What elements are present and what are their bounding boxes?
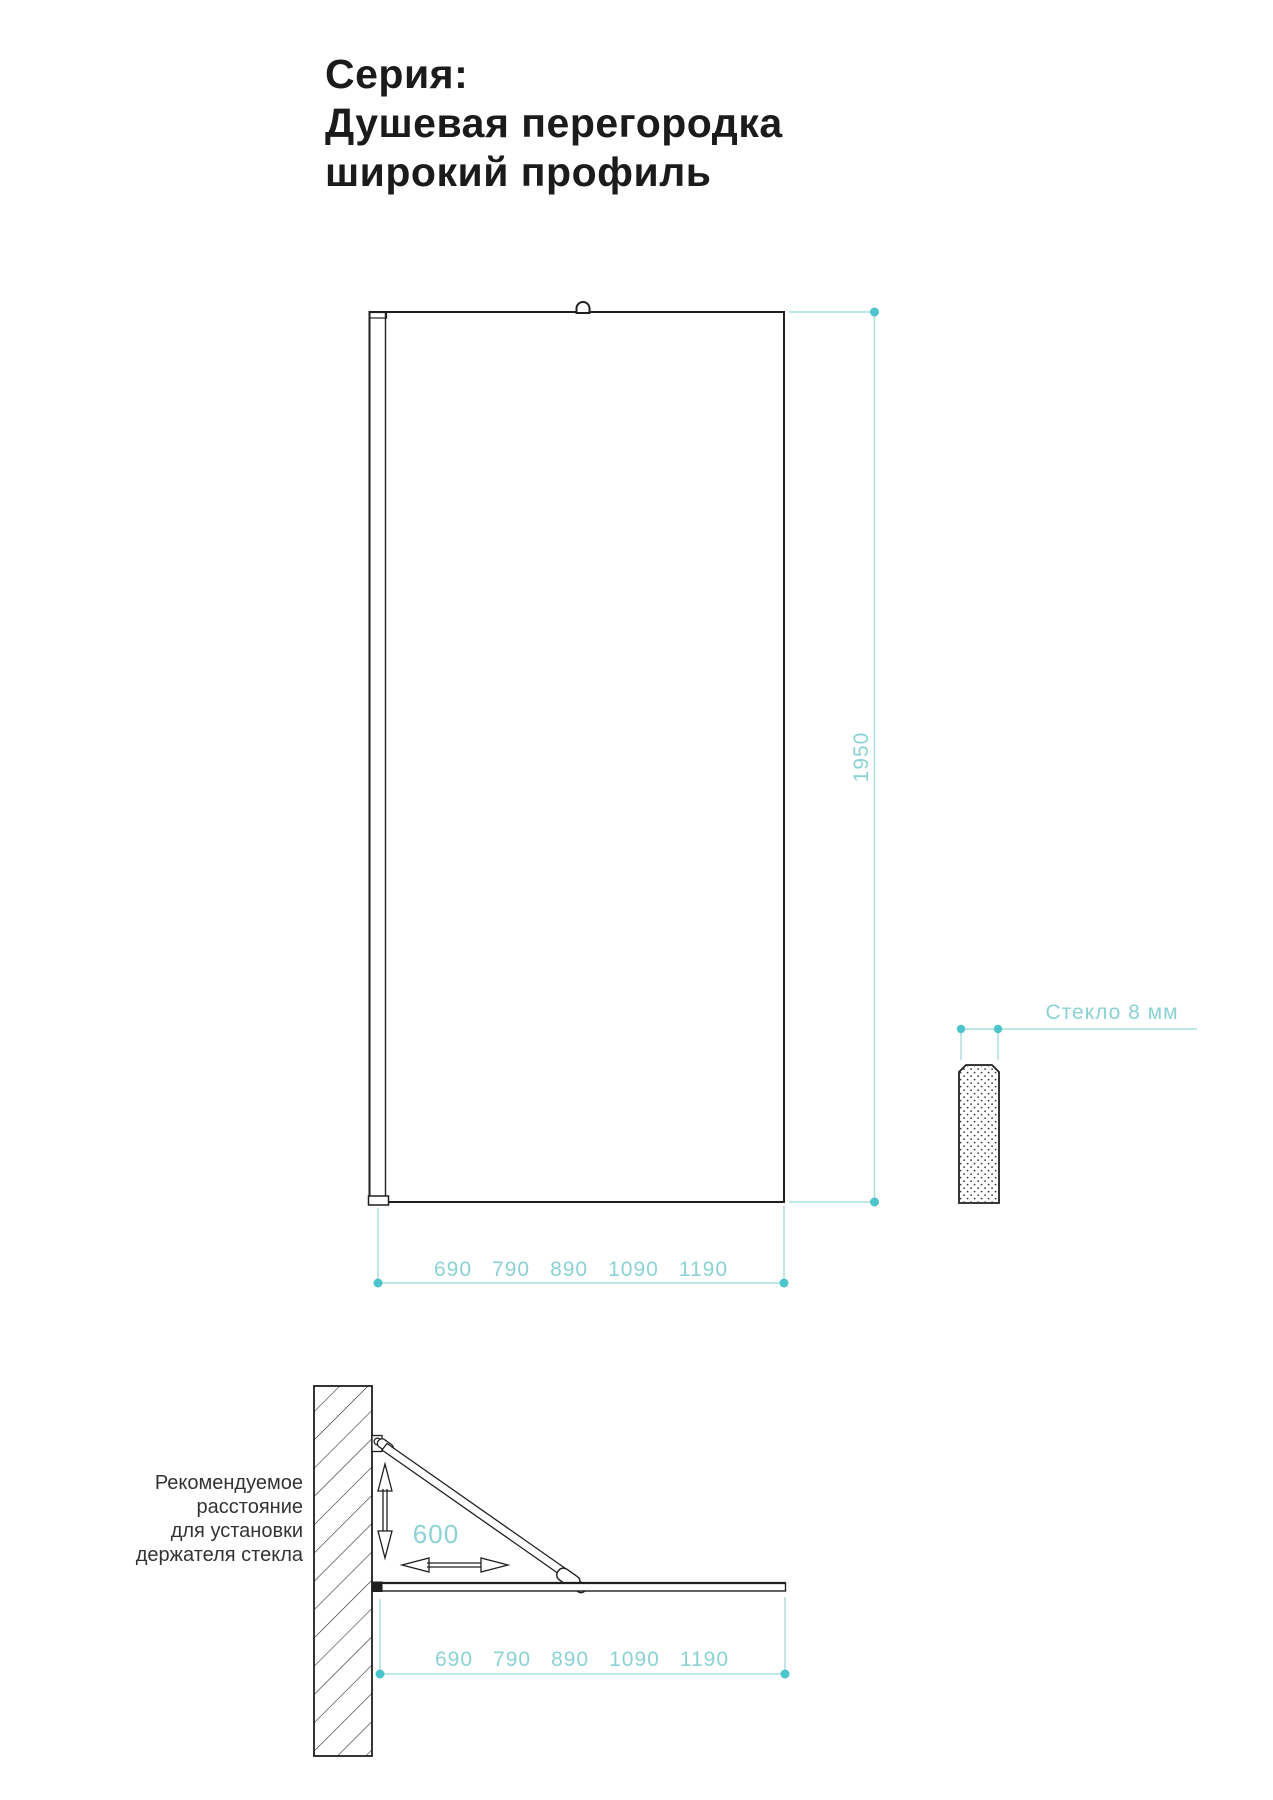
width-option: 1190 <box>679 1258 728 1281</box>
dim-endpoint-dot <box>781 1670 790 1679</box>
width-option: 1090 <box>609 1648 660 1671</box>
dim-endpoint-dot <box>374 1279 383 1288</box>
glass-section-stipple <box>959 1065 999 1203</box>
profile-bottom-foot <box>369 1196 389 1205</box>
width-option: 790 <box>493 1648 531 1671</box>
arrowhead-right <box>481 1558 508 1572</box>
wall-hatched <box>314 1386 372 1756</box>
vertical-adjust-arrow <box>378 1464 392 1558</box>
width-option: 790 <box>492 1258 530 1281</box>
width-option: 690 <box>435 1648 473 1671</box>
support-bar <box>382 1444 574 1582</box>
glass-plan <box>372 1583 786 1591</box>
front-width-dimension: 69079089010901190 <box>374 1206 789 1288</box>
glass-end-profile <box>372 1582 383 1593</box>
glass-thickness-detail: Стекло 8 мм <box>957 1001 1197 1203</box>
dim-endpoint-dot <box>994 1025 1002 1033</box>
height-dimension-label: 1950 <box>850 732 873 783</box>
arrowhead-up <box>378 1464 392 1491</box>
width-option: 1090 <box>608 1258 659 1281</box>
side-width-dimension: 69079089010901190 <box>376 1597 790 1679</box>
height-dimension: 1950 <box>789 308 879 1207</box>
width-option: 1190 <box>680 1648 729 1671</box>
technical-drawing: 1950 69079089010901190 Стекло 8 мм <box>0 0 1273 1800</box>
front-width-labels: 69079089010901190 <box>434 1258 728 1281</box>
dim-endpoint-dot <box>870 308 879 317</box>
glass-thickness-label: Стекло 8 мм <box>1045 1001 1178 1024</box>
glass-panel-outline <box>370 312 785 1202</box>
horizontal-adjust-arrow <box>402 1558 508 1572</box>
side-width-labels: 69079089010901190 <box>435 1648 729 1671</box>
width-option: 890 <box>551 1648 589 1671</box>
width-option: 890 <box>550 1258 588 1281</box>
dim-endpoint-dot <box>780 1279 789 1288</box>
front-view: 1950 69079089010901190 <box>369 302 880 1288</box>
holder-distance-label: 600 <box>413 1519 459 1549</box>
dim-endpoint-dot <box>376 1670 385 1679</box>
dim-endpoint-dot <box>957 1025 965 1033</box>
datasheet-page: Серия: Душевая перегородка широкий профи… <box>0 0 1273 1800</box>
side-view: 600 69079089010901190 <box>314 1386 790 1756</box>
dim-endpoint-dot <box>870 1198 879 1207</box>
arrowhead-left <box>402 1558 429 1572</box>
top-hanger-tab <box>577 302 590 313</box>
arrowhead-down <box>378 1531 392 1558</box>
width-option: 690 <box>434 1258 472 1281</box>
